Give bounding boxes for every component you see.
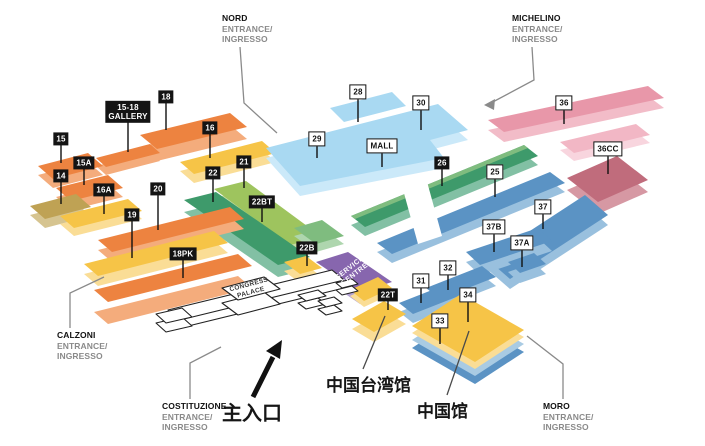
taiwan-pavilion-label: 中国台湾馆 — [326, 371, 411, 396]
hall-label-h14: 14 — [53, 169, 68, 182]
hall-label-h16a: 16A — [93, 183, 114, 196]
entrance-moro: MORO ENTRANCE/ INGRESSO — [543, 401, 594, 433]
entrance-michelino-name: MICHELINO — [512, 13, 563, 24]
hall-label-h33: 33 — [431, 313, 448, 328]
hall-label-gallery: 15-18GALLERY — [105, 101, 150, 123]
hall-label-h37: 37 — [534, 199, 551, 214]
hall-label-h36: 36 — [555, 95, 572, 110]
hall-label-h26: 26 — [434, 156, 449, 169]
entrance-costituzione-name: COSTITUZIONE — [162, 401, 226, 412]
hall-label-h22t: 22T — [378, 288, 398, 301]
hall-label-h19: 19 — [124, 208, 139, 221]
hall-label-h21: 21 — [236, 155, 251, 168]
main-entrance-arrow-shaft — [253, 357, 273, 397]
china-pavilion-label: 中国馆 — [417, 397, 468, 422]
hall-label-h15a: 15A — [73, 156, 94, 169]
main-entrance-label: 主入口 — [222, 397, 282, 426]
hall-label-h22b: 22B — [296, 241, 317, 254]
leader-costituzione — [190, 347, 221, 399]
entrance-costituzione: COSTITUZIONE ENTRANCE/ INGRESSO — [162, 401, 226, 433]
entrance-calzoni: CALZONI ENTRANCE/ INGRESSO — [57, 330, 108, 362]
hall-label-h28: 28 — [349, 84, 366, 99]
hall-label-h32: 32 — [439, 260, 456, 275]
hall-label-mall: MALL — [366, 138, 397, 153]
main-entrance-arrow-head — [266, 340, 282, 359]
hall-label-h30: 30 — [412, 95, 429, 110]
leader-michelino-arrowhead — [484, 99, 495, 110]
entrance-nord-name: NORD — [222, 13, 273, 24]
hall-label-h22bt: 22BT — [249, 195, 275, 208]
leader-moro — [527, 336, 563, 399]
entrance-michelino: MICHELINO ENTRANCE/ INGRESSO — [512, 13, 563, 45]
hall-label-h25: 25 — [486, 164, 503, 179]
leader-nord — [240, 47, 277, 133]
hall-label-h16: 16 — [202, 121, 217, 134]
hall-label-h18: 18 — [158, 90, 173, 103]
hall-label-h36cc: 36CC — [593, 141, 622, 156]
hall-label-h15: 15 — [53, 132, 68, 145]
hall-label-h18pk: 18PK — [170, 247, 197, 260]
entrance-moro-name: MORO — [543, 401, 594, 412]
hall-label-h37a: 37A — [510, 235, 533, 250]
hall-label-h34: 34 — [459, 287, 476, 302]
hall-label-h20: 20 — [150, 182, 165, 195]
hall-label-h29: 29 — [308, 131, 325, 146]
hall-label-h22: 22 — [205, 166, 220, 179]
entrance-nord: NORD ENTRANCE/ INGRESSO — [222, 13, 273, 45]
venue-map: NORD ENTRANCE/ INGRESSO MICHELINO ENTRAN… — [0, 0, 705, 446]
hall-label-h31: 31 — [412, 273, 429, 288]
entrance-calzoni-name: CALZONI — [57, 330, 108, 341]
hall-label-h37b: 37B — [482, 219, 505, 234]
leader-michelino — [489, 47, 534, 104]
